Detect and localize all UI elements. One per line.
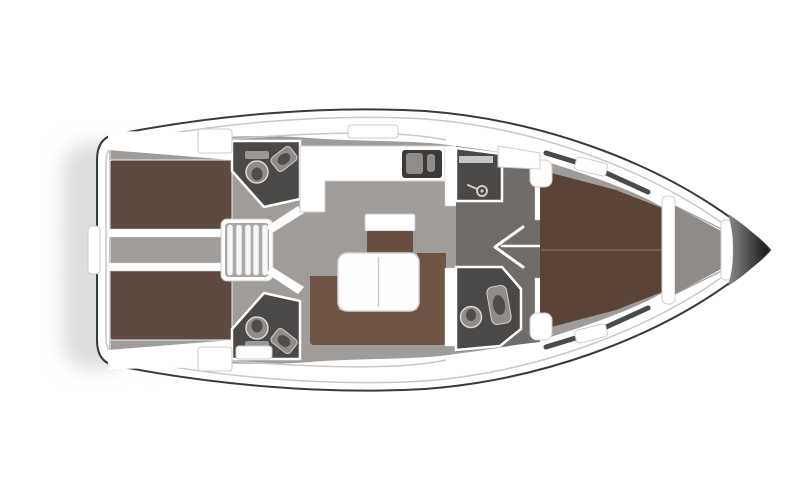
deck-hatch <box>198 129 232 153</box>
toilet-tank-icon <box>245 151 269 159</box>
fwd-shower: forward-shower-compartment <box>456 148 502 201</box>
salon-table: salon-table <box>338 253 419 311</box>
aft-cabin-bottom: aft-double-cabin-starboard <box>110 269 232 340</box>
toilet-bowl-inner <box>252 168 263 181</box>
salon-fwd-wall-lower <box>445 268 456 346</box>
toilet-bowl-inner <box>252 320 263 333</box>
deck-hatch <box>198 347 232 371</box>
toilet-bowl-inner <box>466 309 476 321</box>
salon-fwd-wall-upper <box>445 146 456 206</box>
bow: bow-anchor-locker <box>728 214 769 286</box>
sink-basin-icon <box>406 153 423 174</box>
head-step <box>236 346 272 359</box>
shower-head-dot <box>480 189 483 192</box>
yacht-floorplan-stage: hull-outline stern-transom-swim-platform… <box>0 0 810 500</box>
chart-seat: side-seat <box>365 214 415 255</box>
deck-hatch <box>348 125 398 138</box>
shower-shelf <box>459 156 493 163</box>
aft-cabin-top: aft-double-cabin-port <box>110 160 232 231</box>
sink-basin-icon <box>427 154 435 172</box>
side-shelf <box>530 313 552 340</box>
yacht-floorplan-canvas: hull-outline stern-transom-swim-platform… <box>0 0 810 500</box>
fwd-head: forward-head-wc <box>456 267 521 350</box>
